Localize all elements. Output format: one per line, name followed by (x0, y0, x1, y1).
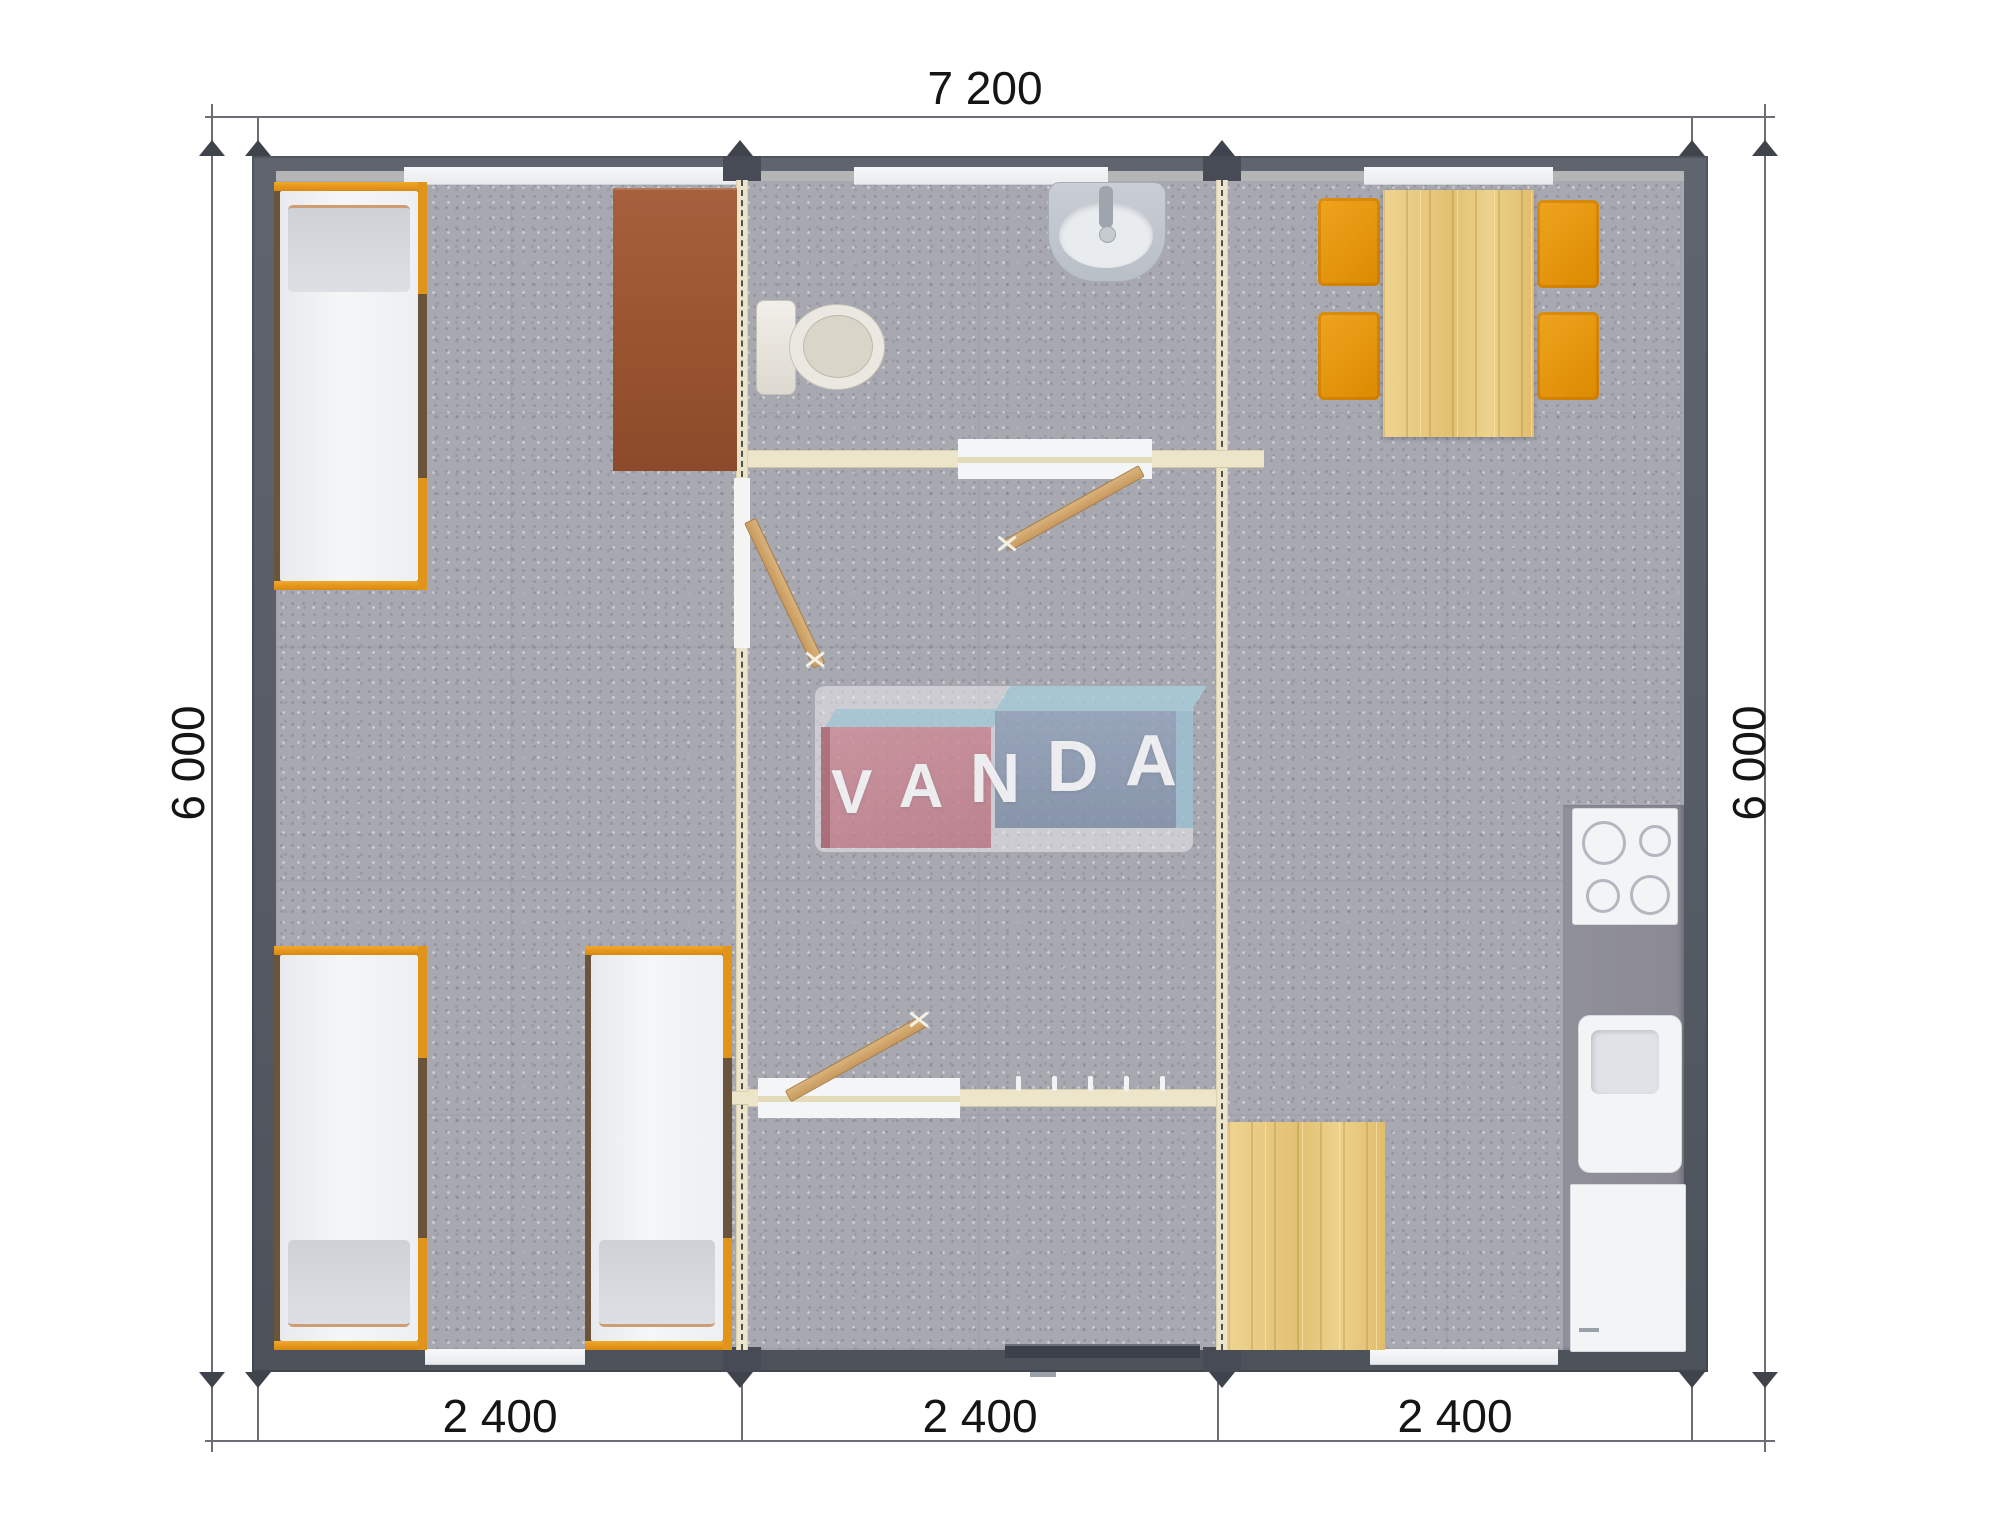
door-track (958, 457, 1152, 463)
floor-plan: 7 200 2 400 2 400 2 400 6 000 6 000 (0, 0, 2000, 1537)
dimension-arrow (1679, 140, 1705, 156)
bed-rail (274, 1341, 427, 1350)
sink-basin (1591, 1030, 1659, 1094)
bed-rail (274, 182, 427, 191)
dimension-arrow (199, 140, 225, 156)
mattress (591, 955, 723, 1341)
joint-dash (741, 180, 743, 1350)
dimension-arrow (1752, 140, 1778, 156)
dimension-label-left-height: 6 000 (164, 663, 212, 863)
chair (1537, 312, 1599, 400)
pillow (599, 1240, 715, 1327)
faucet-icon (1099, 186, 1113, 228)
doorway-opening (734, 478, 750, 648)
dimension-label-right-height: 6 000 (1725, 663, 1773, 863)
burner-icon (1639, 825, 1671, 857)
dimension-arrow (199, 1372, 225, 1388)
bed-rail (585, 1341, 732, 1350)
module-joint-line (1216, 180, 1228, 1350)
logo-blue-box-side (1176, 711, 1193, 828)
bed-rail (274, 946, 427, 955)
bed-post (418, 478, 427, 590)
dimension-line-top (205, 116, 1775, 118)
mattress (280, 955, 418, 1341)
entrance-door (1005, 1344, 1200, 1358)
module-connector (1203, 156, 1241, 181)
module-connector (723, 1347, 761, 1372)
module-marker-arrow (727, 140, 753, 156)
bed-post (418, 182, 427, 294)
door-swing-mark (996, 532, 1018, 554)
window-sill (425, 1349, 585, 1365)
module-marker-arrow (1209, 1372, 1235, 1388)
dimension-arrow (245, 1372, 271, 1388)
logo-letter: A (899, 756, 944, 818)
bed-post (723, 946, 732, 1058)
bed-post (418, 1238, 427, 1350)
single-bed (274, 182, 427, 590)
module-joint-line (736, 180, 748, 1350)
coat-hook (1088, 1076, 1093, 1091)
chair (1537, 200, 1599, 288)
vanda-watermark: V A N D A (815, 686, 1193, 852)
partition-extension (1216, 451, 1264, 467)
dimension-label-module-3: 2 400 (1355, 1392, 1555, 1440)
coat-hook (1016, 1076, 1021, 1091)
dimension-arrow (1752, 1372, 1778, 1388)
logo-letter: D (1047, 731, 1099, 803)
chair (1318, 312, 1380, 400)
dining-table (1383, 190, 1534, 437)
chair (1318, 198, 1380, 286)
coat-hook (1124, 1076, 1129, 1091)
bed-rail (585, 946, 732, 955)
bed-rail (274, 581, 427, 590)
cooktop (1572, 808, 1678, 925)
wood-floor-mat (1228, 1122, 1385, 1350)
door-swing-mark (908, 1008, 930, 1030)
logo-letter: V (831, 762, 872, 824)
dimension-label-module-2: 2 400 (880, 1392, 1080, 1440)
pillow (288, 1240, 410, 1327)
coat-hook (1052, 1076, 1057, 1091)
logo-red-box-top (825, 709, 1004, 727)
pillow (288, 205, 410, 292)
dimension-label-top-width: 7 200 (885, 64, 1085, 112)
single-bed (585, 946, 732, 1350)
module-connector (1203, 1347, 1241, 1372)
desk (613, 188, 737, 471)
door-handle (1030, 1372, 1056, 1377)
burner-icon (1630, 875, 1670, 915)
mattress (280, 191, 418, 581)
logo-letter: N (970, 743, 1021, 813)
window-sill (404, 167, 737, 185)
door-swing-mark (804, 648, 826, 670)
burner-icon (1586, 879, 1620, 913)
burner-icon (1582, 821, 1626, 865)
logo-blue-box-top (995, 686, 1207, 711)
logo-letter: A (1125, 725, 1177, 797)
cabinet-handle (1579, 1328, 1599, 1332)
single-bed (274, 946, 427, 1350)
window-sill (1370, 1349, 1558, 1365)
kitchen-sink (1578, 1015, 1682, 1173)
module-connector (723, 156, 761, 181)
bed-post (723, 1238, 732, 1350)
faucet-knob (1099, 226, 1116, 243)
dimension-arrow (245, 140, 271, 156)
base-cabinet (1570, 1184, 1686, 1352)
toilet-seat (803, 315, 873, 378)
coat-hook (1160, 1076, 1165, 1091)
dimension-arrow (1679, 1372, 1705, 1388)
logo-red-box-side (821, 727, 830, 848)
bed-post (418, 946, 427, 1058)
module-marker-arrow (1209, 140, 1235, 156)
window-sill (1364, 167, 1553, 185)
module-marker-arrow (727, 1372, 753, 1388)
dimension-label-module-1: 2 400 (400, 1392, 600, 1440)
logo-text: V A N D A (831, 730, 1177, 842)
joint-dash (1221, 180, 1223, 1350)
